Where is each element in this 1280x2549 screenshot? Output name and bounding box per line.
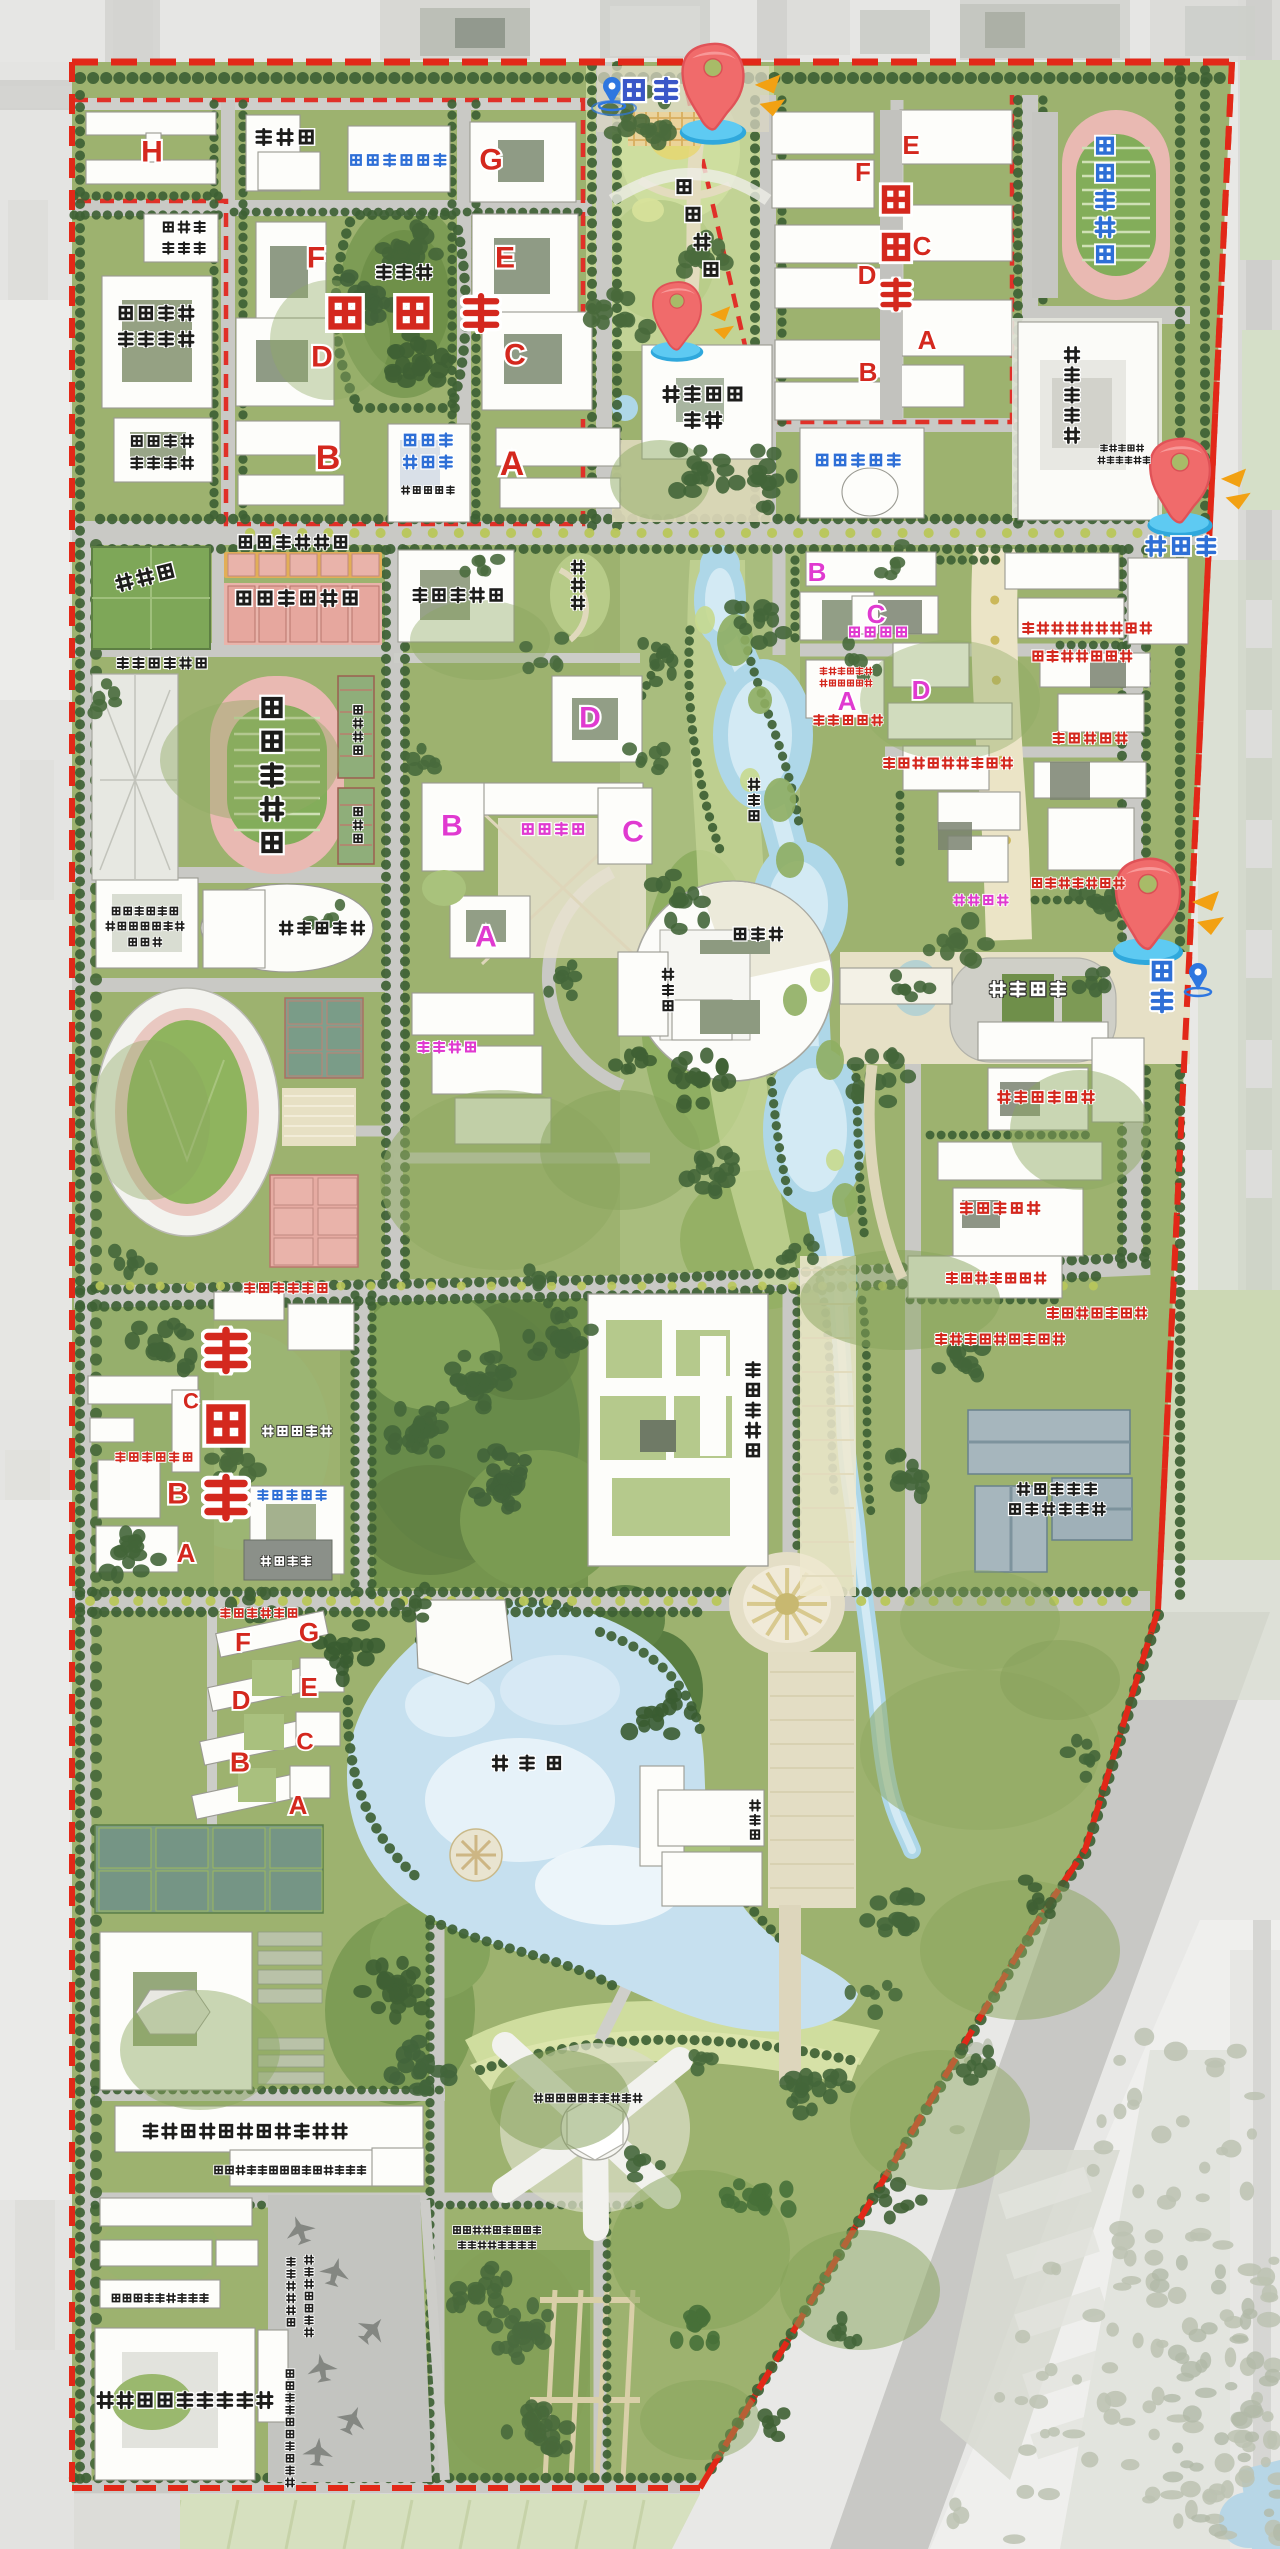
svg-text:D: D [858, 260, 877, 290]
svg-text:C: C [913, 231, 932, 261]
svg-text:G: G [299, 1617, 319, 1647]
svg-text:F: F [307, 242, 325, 275]
svg-text:A: A [475, 921, 497, 954]
svg-text:A: A [289, 1790, 308, 1820]
svg-text:B: B [859, 357, 878, 387]
svg-text:B: B [316, 439, 341, 477]
svg-text:E: E [902, 130, 919, 160]
svg-text:A: A [838, 686, 857, 716]
svg-text:F: F [235, 1627, 251, 1657]
svg-text:A: A [177, 1538, 196, 1568]
svg-text:E: E [495, 242, 515, 275]
svg-text:F: F [855, 157, 871, 187]
svg-text:A: A [500, 445, 525, 483]
svg-text:B: B [167, 1478, 189, 1511]
svg-text:C: C [183, 1389, 199, 1414]
svg-text:H: H [141, 136, 163, 169]
svg-text:B: B [230, 1747, 250, 1778]
svg-text:D: D [912, 675, 931, 705]
svg-text:C: C [622, 816, 644, 849]
svg-text:D: D [232, 1685, 251, 1715]
svg-text:C: C [867, 599, 886, 629]
svg-text:B: B [441, 810, 463, 843]
svg-text:C: C [296, 1729, 313, 1756]
svg-text:G: G [479, 144, 502, 177]
svg-text:C: C [504, 339, 526, 372]
svg-text:B: B [808, 557, 827, 587]
svg-text:E: E [300, 1672, 317, 1702]
svg-text:D: D [311, 341, 333, 374]
svg-text:D: D [579, 702, 601, 735]
svg-text:A: A [918, 325, 937, 355]
